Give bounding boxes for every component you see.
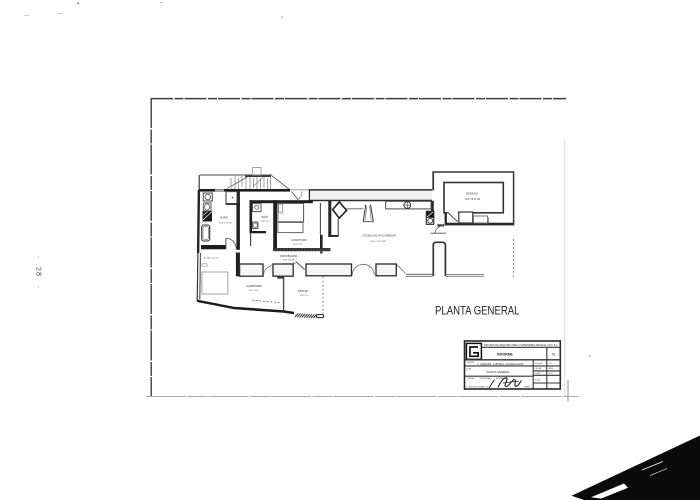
svg-text:SUP. 6,80 M2: SUP. 6,80 M2 [283, 260, 296, 262]
svg-text:DORMITORIO: DORMITORIO [247, 285, 263, 288]
svg-text:28: 28 [35, 267, 44, 277]
svg-text:BODEGA: BODEGA [466, 192, 478, 196]
svg-text:N.02: N.02 [549, 373, 553, 375]
svg-text:NOMBRE: NOMBRE [467, 362, 476, 364]
svg-text:SUP. 4,20 M2: SUP. 4,20 M2 [219, 223, 233, 225]
svg-text:ALJIBE 2,40 M2: ALJIBE 2,40 M2 [204, 256, 219, 259]
svg-text:ESTUDIO DE ARQUITECTURA Y URBA: ESTUDIO DE ARQUITECTURA Y URBANISMO AMAS… [484, 343, 558, 347]
svg-text:SUP = 56,40 M2: SUP = 56,40 M2 [370, 241, 387, 243]
svg-text:HOJA: HOJA [535, 379, 541, 382]
svg-text:SUP. 28,50 M2: SUP. 28,50 M2 [465, 199, 481, 201]
svg-text:-: - [35, 286, 41, 288]
svg-text:COCINA SALON-COMEDOR: COCINA SALON-COMEDOR [362, 234, 396, 238]
svg-text:COMPROBADO: COMPROBADO [479, 377, 492, 380]
svg-text:INFORME: INFORME [497, 352, 513, 356]
svg-text:DIBUJADO: DIBUJADO [467, 377, 476, 380]
svg-text:PLANTA GENERAL: PLANTA GENERAL [486, 370, 510, 374]
svg-text:ABRIL: ABRIL [549, 367, 554, 370]
svg-text:SUP. 8,10: SUP. 8,10 [300, 295, 310, 297]
svg-text:PLAN: PLAN [467, 367, 472, 370]
svg-text:DISTRIBUIDOR: DISTRIBUIDOR [280, 255, 297, 258]
svg-text:BAÑO: BAÑO [262, 216, 269, 219]
svg-text:02: 02 [552, 353, 556, 357]
svg-text:PLANTA GENERAL: PLANTA GENERAL [435, 304, 520, 318]
svg-text:SUP. 12,60: SUP. 12,60 [249, 290, 260, 292]
svg-text:FECHA: FECHA [535, 367, 542, 370]
svg-text:ESCALA: ESCALA [535, 362, 543, 365]
svg-text:PORCHE: PORCHE [298, 290, 309, 293]
svg-text:SUP. 3,10: SUP. 3,10 [261, 221, 269, 223]
svg-text:L. ALMOINA - LUPIANA, GUADALAJ: L. ALMOINA - LUPIANA, GUADALAJARA [478, 363, 524, 366]
svg-text:FIRMA: FIRMA [524, 386, 530, 389]
svg-text:PLANO: PLANO [535, 372, 542, 375]
svg-text:-: - [35, 256, 41, 258]
svg-text:C. PROYECTOS AML, SL: C. PROYECTOS AML, SL [467, 386, 489, 389]
svg-text:SUP. 9,40: SUP. 9,40 [293, 244, 303, 246]
svg-text:DORMITORIO: DORMITORIO [292, 239, 308, 242]
svg-text:1/75: 1/75 [549, 363, 553, 365]
